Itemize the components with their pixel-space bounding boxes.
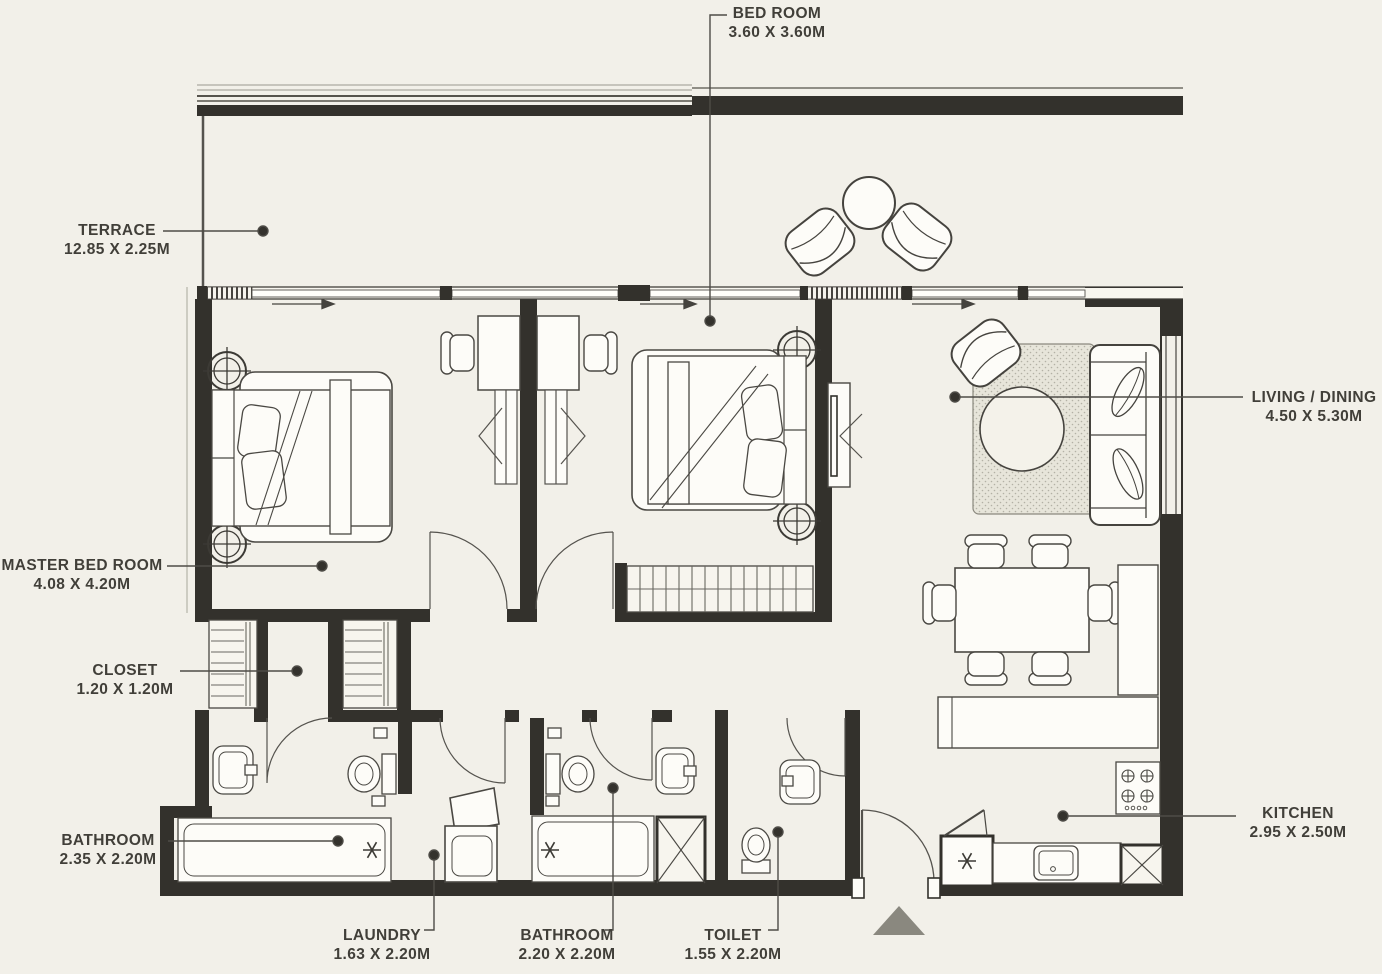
toilet-fixtures xyxy=(742,760,820,873)
sink-symbol xyxy=(780,760,820,804)
entry-marker xyxy=(873,906,925,935)
label-bathroom-2: BATHROOM 2.20 X 2.20M xyxy=(506,926,628,964)
room-dims: 1.63 X 2.20M xyxy=(322,945,442,964)
dining-chair xyxy=(965,535,1007,568)
bathtub-symbol xyxy=(532,816,654,882)
washer-symbol xyxy=(445,788,499,882)
label-bedroom: BED ROOM 3.60 X 3.60M xyxy=(707,4,847,42)
dining-chair xyxy=(965,652,1007,685)
label-toilet: TOILET 1.55 X 2.20M xyxy=(672,926,794,964)
dining-chair xyxy=(923,582,956,624)
bedroom-furniture xyxy=(627,326,821,612)
room-name: BED ROOM xyxy=(733,5,821,22)
right-wall-window xyxy=(1162,336,1181,514)
tv-console xyxy=(828,383,862,487)
toilet-symbol xyxy=(742,828,770,873)
bathtub-symbol xyxy=(178,818,391,882)
room-name: CLOSET xyxy=(92,662,157,679)
dining-chair xyxy=(1088,582,1121,624)
label-bathroom-1: BATHROOM 2.35 X 2.20M xyxy=(46,831,170,869)
master-bed xyxy=(212,372,392,542)
bedroom-closet xyxy=(627,566,813,612)
dining-chair xyxy=(1029,535,1071,568)
laundry-fixtures xyxy=(445,788,499,882)
coffee-table xyxy=(980,387,1064,471)
toilet-symbol xyxy=(348,728,396,806)
room-dims: 4.08 X 4.20M xyxy=(0,575,164,594)
label-terrace: TERRACE 12.85 X 2.25M xyxy=(52,221,182,259)
room-name: LAUNDRY xyxy=(343,927,421,944)
terrace-table xyxy=(843,177,895,229)
room-dims: 2.20 X 2.20M xyxy=(506,945,628,964)
room-dims: 4.50 X 5.30M xyxy=(1246,407,1382,426)
room-name: MASTER BED ROOM xyxy=(2,557,163,574)
label-kitchen: KITCHEN 2.95 X 2.50M xyxy=(1232,804,1364,842)
toilet-symbol xyxy=(546,728,594,806)
label-closet: CLOSET 1.20 X 1.20M xyxy=(64,661,186,699)
room-name: KITCHEN xyxy=(1262,805,1334,822)
kitchen-sink xyxy=(1034,846,1078,880)
room-name: TERRACE xyxy=(78,222,156,239)
duct-shaft xyxy=(657,817,705,883)
label-laundry: LAUNDRY 1.63 X 2.20M xyxy=(322,926,442,964)
bedroom-bed xyxy=(632,350,806,510)
sink-symbol xyxy=(656,748,696,794)
duct-shaft xyxy=(1121,845,1163,885)
bathroom1-fixtures xyxy=(178,728,396,882)
counter-right xyxy=(1118,565,1158,695)
room-name: BATHROOM xyxy=(520,927,613,944)
room-dims: 3.60 X 3.60M xyxy=(707,23,847,42)
label-living-dining: LIVING / DINING 4.50 X 5.30M xyxy=(1246,388,1382,426)
room-dims: 1.20 X 1.20M xyxy=(64,680,186,699)
sink-symbol xyxy=(213,746,257,794)
desk-chair xyxy=(584,332,617,374)
fridge xyxy=(941,810,993,886)
master-bedroom-furniture xyxy=(203,316,617,568)
bathroom2-fixtures xyxy=(532,728,705,883)
floor-plan-page: BED ROOM 3.60 X 3.60M TERRACE 12.85 X 2.… xyxy=(0,0,1382,974)
room-name: LIVING / DINING xyxy=(1252,389,1377,406)
room-dims: 2.95 X 2.50M xyxy=(1232,823,1364,842)
terrace-window-band xyxy=(197,285,1183,309)
room-dims: 1.55 X 2.20M xyxy=(672,945,794,964)
sofa xyxy=(1090,345,1160,525)
dining-set xyxy=(923,535,1121,685)
room-name: TOILET xyxy=(704,927,761,944)
room-dims: 2.35 X 2.20M xyxy=(46,850,170,869)
entry-door xyxy=(852,810,940,898)
stove xyxy=(1116,762,1160,814)
label-master-bedroom: MASTER BED ROOM 4.08 X 4.20M xyxy=(0,556,164,594)
room-dims: 12.85 X 2.25M xyxy=(52,240,182,259)
desk-chair xyxy=(441,332,474,374)
dining-table xyxy=(955,568,1089,652)
room-name: BATHROOM xyxy=(61,832,154,849)
terrace-furniture xyxy=(780,177,958,282)
floor-plan-drawing xyxy=(0,0,1382,974)
counter-peninsula xyxy=(938,697,1158,748)
hall-closets xyxy=(209,620,397,708)
dining-chair xyxy=(1029,652,1071,685)
